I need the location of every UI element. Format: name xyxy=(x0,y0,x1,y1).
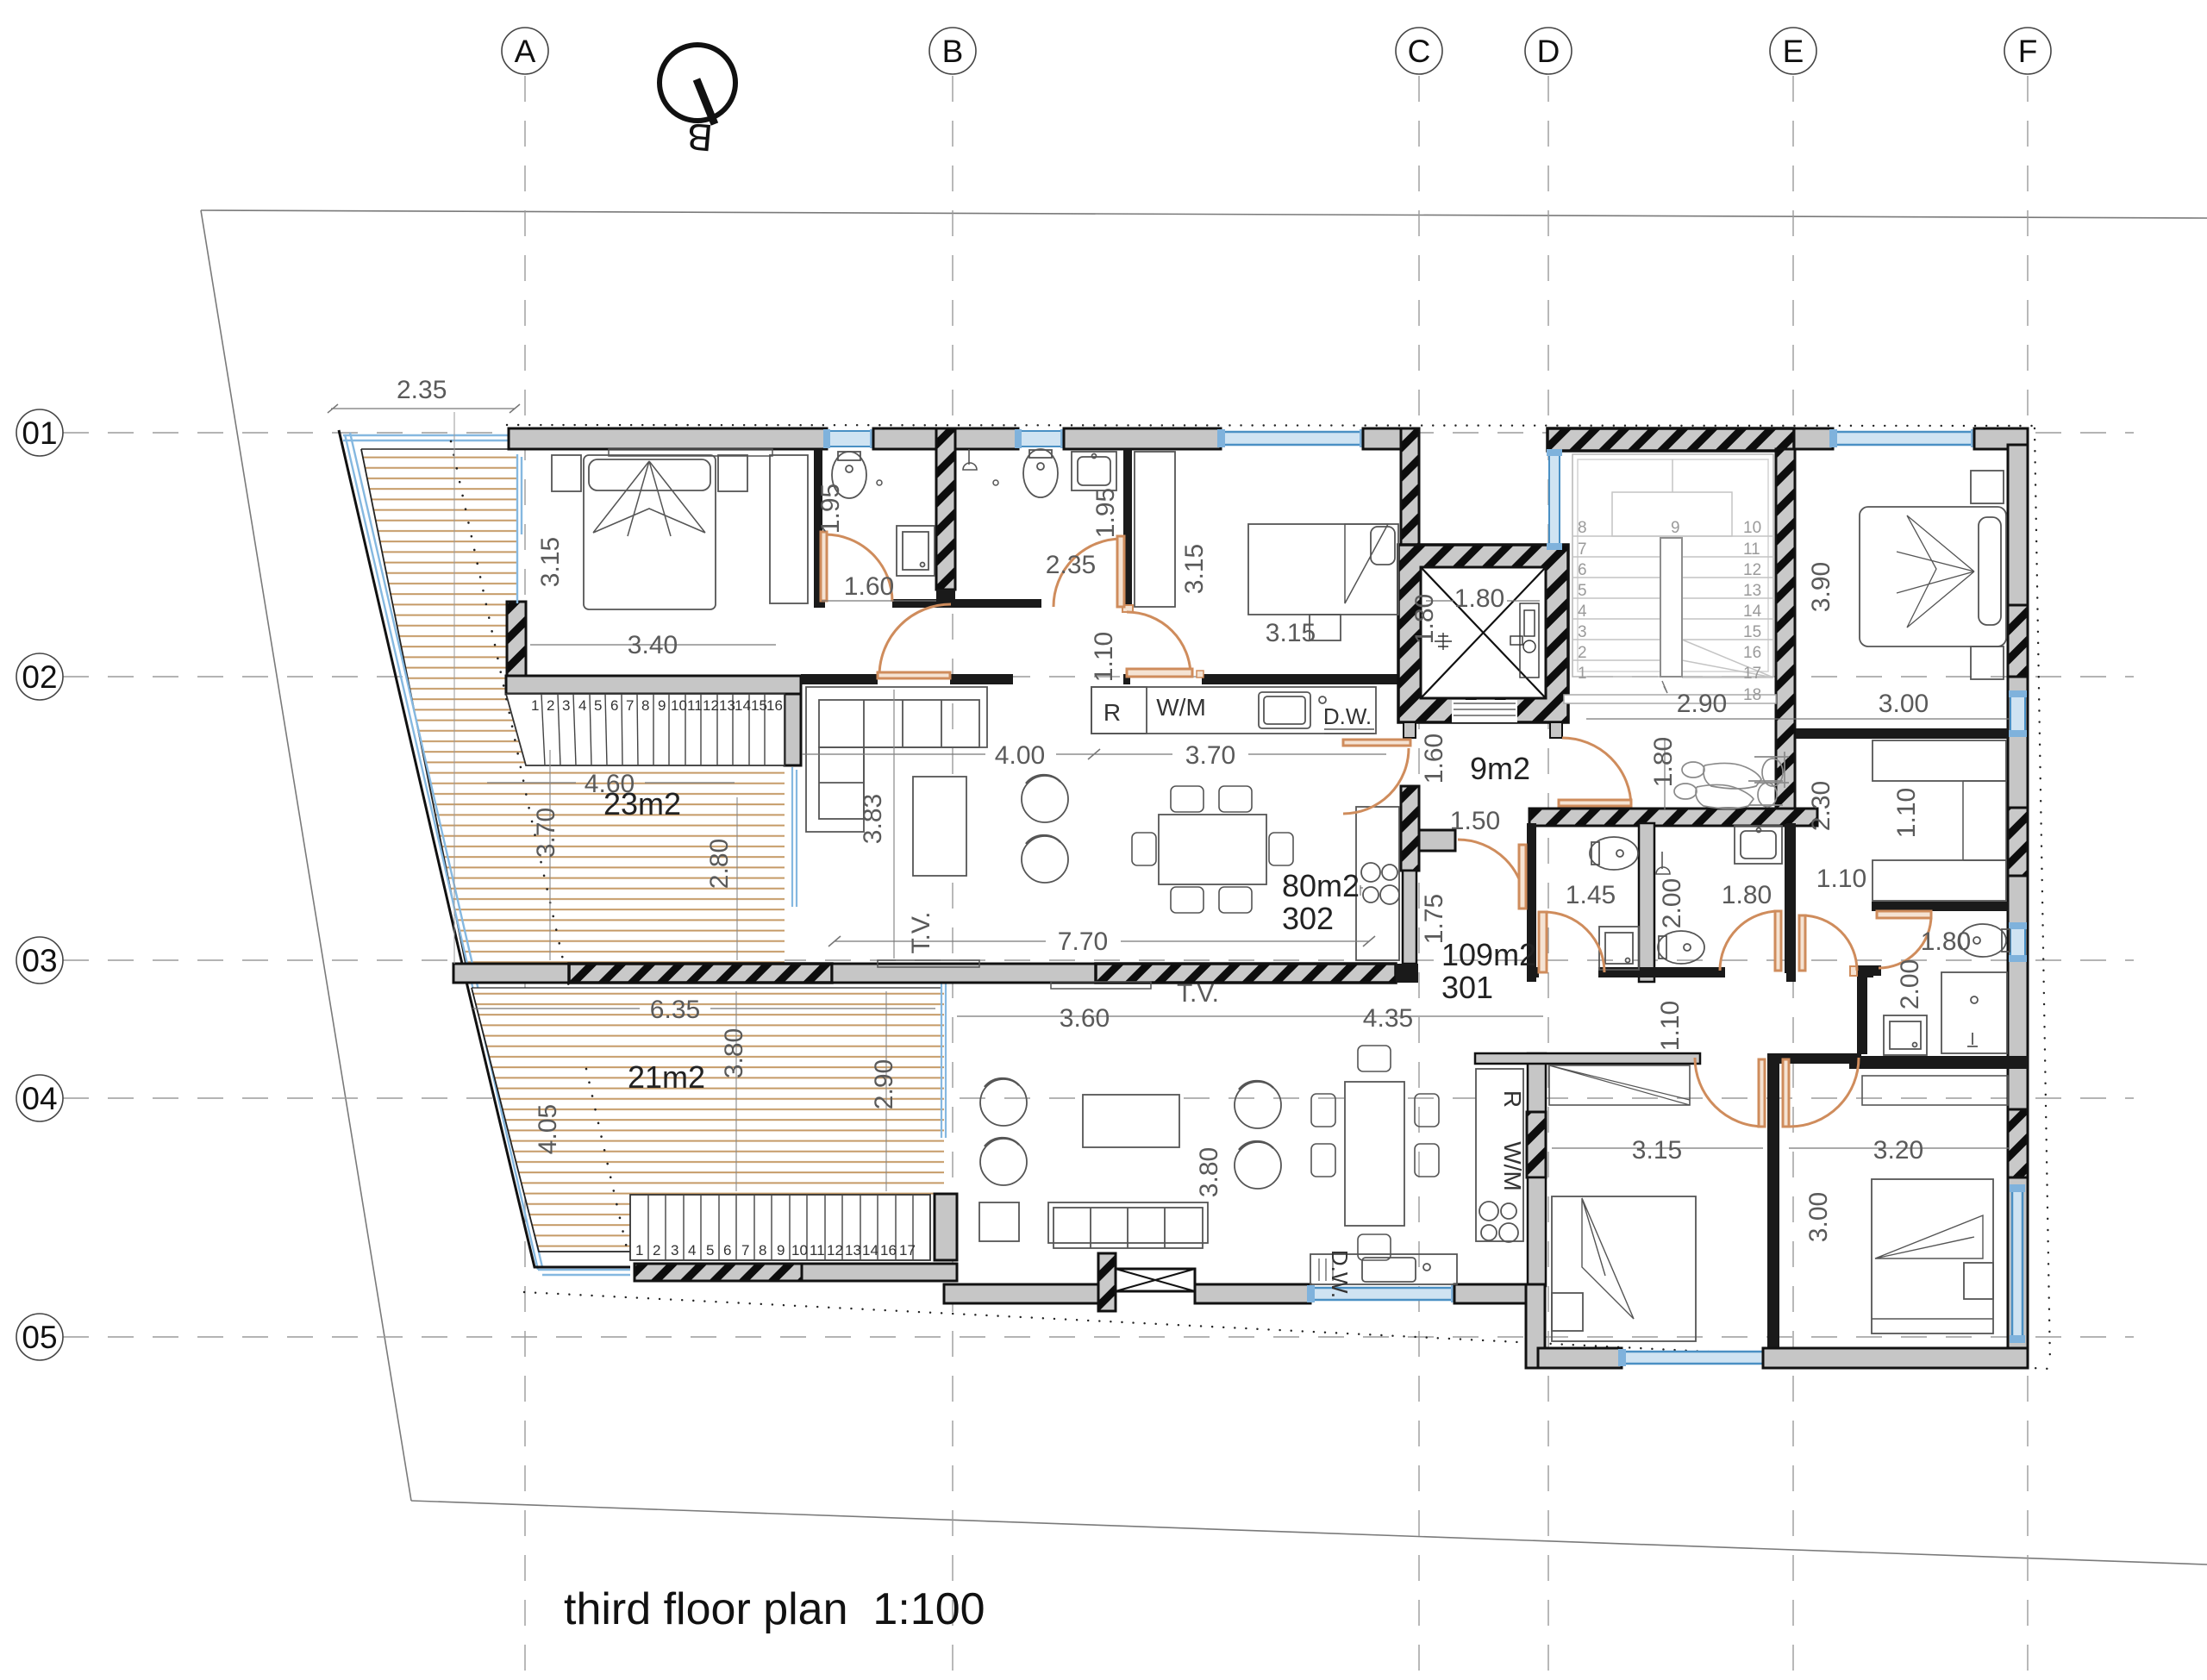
svg-text:W/M: W/M xyxy=(1156,694,1206,721)
svg-text:1.80: 1.80 xyxy=(1722,881,1772,909)
svg-text:1.80: 1.80 xyxy=(1454,584,1504,613)
svg-text:3.70: 3.70 xyxy=(1185,741,1235,770)
svg-text:R: R xyxy=(1499,1090,1526,1108)
svg-text:3.60: 3.60 xyxy=(1060,1004,1110,1033)
svg-text:10: 10 xyxy=(791,1242,808,1258)
svg-text:2.35: 2.35 xyxy=(397,376,447,404)
svg-text:301: 301 xyxy=(1441,970,1493,1005)
svg-text:4: 4 xyxy=(1578,603,1587,621)
svg-text:1: 1 xyxy=(531,697,539,714)
svg-text:12: 12 xyxy=(1743,561,1761,579)
svg-text:third floor plan 1:100: third floor plan 1:100 xyxy=(564,1584,985,1634)
svg-text:3.70: 3.70 xyxy=(532,808,560,858)
svg-text:3.80: 3.80 xyxy=(720,1028,748,1078)
svg-text:D.W.: D.W. xyxy=(1323,703,1372,729)
svg-text:4: 4 xyxy=(688,1242,696,1258)
svg-text:1.60: 1.60 xyxy=(1420,734,1448,784)
svg-text:3.00: 3.00 xyxy=(1804,1192,1833,1242)
svg-text:21m2: 21m2 xyxy=(628,1059,705,1095)
svg-text:1.80: 1.80 xyxy=(1649,737,1678,787)
svg-text:T.V.: T.V. xyxy=(907,912,935,954)
svg-text:14: 14 xyxy=(735,697,751,714)
svg-text:6: 6 xyxy=(723,1242,731,1258)
svg-text:12: 12 xyxy=(703,697,719,714)
svg-text:6: 6 xyxy=(1578,561,1587,579)
svg-text:2.90: 2.90 xyxy=(870,1059,898,1109)
svg-text:9m2: 9m2 xyxy=(1470,751,1530,786)
svg-text:3.15: 3.15 xyxy=(536,537,565,587)
svg-text:8: 8 xyxy=(641,697,649,714)
svg-text:6: 6 xyxy=(610,697,618,714)
svg-text:5: 5 xyxy=(706,1242,714,1258)
svg-text:B: B xyxy=(685,115,715,159)
svg-text:10: 10 xyxy=(1743,519,1761,537)
svg-text:2: 2 xyxy=(653,1242,660,1258)
svg-text:01: 01 xyxy=(22,415,57,451)
svg-text:15: 15 xyxy=(751,697,767,714)
svg-text:11: 11 xyxy=(687,697,703,714)
svg-text:2.00: 2.00 xyxy=(1658,878,1686,928)
svg-text:3.00: 3.00 xyxy=(1879,690,1929,718)
svg-text:3.15: 3.15 xyxy=(1632,1136,1682,1165)
svg-text:3: 3 xyxy=(562,697,570,714)
svg-text:4.05: 4.05 xyxy=(534,1104,562,1154)
svg-text:05: 05 xyxy=(22,1320,57,1355)
svg-text:5: 5 xyxy=(594,697,602,714)
svg-text:1.95: 1.95 xyxy=(816,484,845,534)
svg-text:10: 10 xyxy=(671,697,687,714)
svg-text:1.80: 1.80 xyxy=(1921,927,1971,956)
svg-text:7: 7 xyxy=(626,697,634,714)
svg-text:2: 2 xyxy=(547,697,554,714)
svg-text:16: 16 xyxy=(1743,644,1761,662)
svg-text:9: 9 xyxy=(777,1242,785,1258)
svg-text:13: 13 xyxy=(845,1242,861,1258)
svg-text:3: 3 xyxy=(671,1242,678,1258)
svg-text:80m2: 80m2 xyxy=(1282,868,1360,903)
svg-text:7: 7 xyxy=(741,1242,749,1258)
svg-text:D: D xyxy=(1537,34,1560,69)
svg-text:A: A xyxy=(515,34,536,69)
svg-text:15: 15 xyxy=(1743,623,1761,641)
svg-text:1.10: 1.10 xyxy=(1892,788,1921,838)
svg-text:11: 11 xyxy=(1743,540,1760,559)
svg-text:1.95: 1.95 xyxy=(1091,488,1120,538)
svg-text:8: 8 xyxy=(759,1242,766,1258)
svg-text:C: C xyxy=(1408,34,1431,69)
svg-text:18: 18 xyxy=(1743,686,1761,704)
svg-text:17: 17 xyxy=(899,1242,916,1258)
svg-text:16: 16 xyxy=(880,1242,897,1258)
svg-text:3.90: 3.90 xyxy=(1807,562,1835,612)
svg-text:14: 14 xyxy=(1743,603,1762,621)
svg-text:B: B xyxy=(942,34,964,69)
svg-text:1: 1 xyxy=(1578,665,1587,683)
svg-text:1.60: 1.60 xyxy=(844,572,894,601)
svg-text:17: 17 xyxy=(1743,665,1761,683)
svg-text:7: 7 xyxy=(1578,540,1587,559)
svg-text:4: 4 xyxy=(578,697,586,714)
svg-text:14: 14 xyxy=(862,1242,878,1258)
svg-text:04: 04 xyxy=(22,1081,57,1116)
svg-text:1.80: 1.80 xyxy=(1410,594,1439,644)
svg-text:8: 8 xyxy=(1578,519,1587,537)
svg-text:7.70: 7.70 xyxy=(1058,927,1108,956)
svg-text:W/M: W/M xyxy=(1499,1141,1526,1191)
svg-text:1: 1 xyxy=(635,1242,643,1258)
svg-text:1.10: 1.10 xyxy=(1656,1001,1685,1051)
svg-text:12: 12 xyxy=(827,1242,843,1258)
svg-text:13: 13 xyxy=(719,697,735,714)
svg-text:302: 302 xyxy=(1282,901,1334,936)
svg-text:R: R xyxy=(1103,699,1121,726)
svg-text:03: 03 xyxy=(22,943,57,978)
svg-text:6.35: 6.35 xyxy=(650,996,700,1024)
svg-text:1.50: 1.50 xyxy=(1450,807,1500,835)
svg-text:9: 9 xyxy=(1671,519,1680,537)
svg-text:2: 2 xyxy=(1578,644,1587,662)
svg-text:1.10: 1.10 xyxy=(1090,632,1118,682)
svg-text:3: 3 xyxy=(1578,623,1587,641)
svg-text:3.15: 3.15 xyxy=(1266,619,1316,647)
svg-text:2.35: 2.35 xyxy=(1046,551,1096,579)
svg-text:E: E xyxy=(1783,34,1804,69)
svg-text:3.20: 3.20 xyxy=(1873,1136,1923,1165)
svg-text:4.00: 4.00 xyxy=(995,741,1045,770)
svg-text:3.15: 3.15 xyxy=(1180,544,1209,594)
svg-text:3.80: 3.80 xyxy=(1195,1147,1223,1197)
svg-text:11: 11 xyxy=(810,1242,825,1258)
svg-text:23m2: 23m2 xyxy=(603,786,681,821)
svg-text:D.W.: D.W. xyxy=(1327,1250,1353,1298)
svg-text:109m2: 109m2 xyxy=(1441,937,1536,972)
svg-text:16: 16 xyxy=(766,697,783,714)
svg-text:2.90: 2.90 xyxy=(1677,690,1727,718)
svg-text:4.35: 4.35 xyxy=(1363,1004,1413,1033)
svg-text:3.83: 3.83 xyxy=(859,794,887,844)
svg-text:2.30: 2.30 xyxy=(1807,781,1835,831)
svg-text:9: 9 xyxy=(658,697,666,714)
svg-text:3.40: 3.40 xyxy=(628,631,678,659)
svg-text:T.V.: T.V. xyxy=(1177,979,1219,1008)
svg-text:1.10: 1.10 xyxy=(1816,865,1866,893)
svg-text:2.80: 2.80 xyxy=(705,839,734,889)
svg-text:13: 13 xyxy=(1743,582,1761,600)
svg-text:2.00: 2.00 xyxy=(1896,959,1924,1009)
svg-text:02: 02 xyxy=(22,659,57,695)
svg-text:1.45: 1.45 xyxy=(1566,881,1616,909)
svg-text:F: F xyxy=(2018,34,2038,69)
svg-text:5: 5 xyxy=(1578,582,1587,600)
